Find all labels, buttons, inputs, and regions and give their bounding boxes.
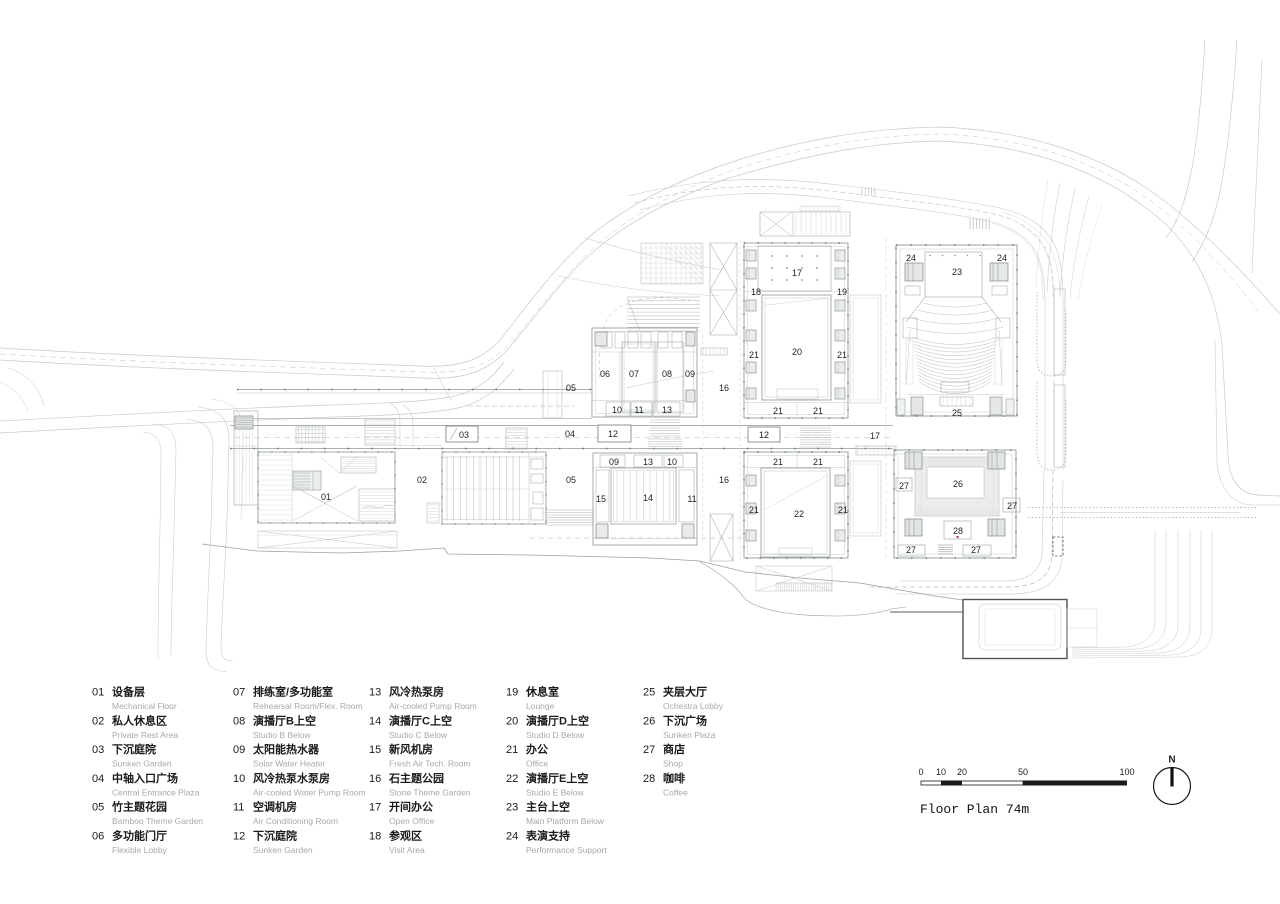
svg-text:20: 20	[506, 715, 518, 727]
svg-text:20: 20	[792, 347, 802, 357]
svg-text:Air Conditioning Room: Air Conditioning Room	[253, 816, 338, 826]
svg-text:Coffee: Coffee	[663, 787, 688, 797]
svg-text:28: 28	[953, 526, 963, 536]
svg-text:27: 27	[643, 744, 655, 756]
svg-text:演播厅D上空: 演播厅D上空	[526, 713, 589, 727]
svg-text:参观区: 参观区	[389, 829, 422, 843]
svg-text:10: 10	[612, 405, 622, 415]
svg-text:21: 21	[749, 505, 759, 515]
svg-text:06: 06	[92, 831, 104, 843]
svg-text:Ochestra Lobby: Ochestra Lobby	[663, 701, 724, 711]
svg-text:05: 05	[566, 475, 576, 485]
svg-text:26: 26	[953, 479, 963, 489]
svg-text:下沉庭院: 下沉庭院	[253, 829, 297, 843]
svg-text:Mechanical Floor: Mechanical Floor	[112, 701, 177, 711]
svg-text:Fresh Air Tech. Room: Fresh Air Tech. Room	[389, 759, 471, 769]
svg-text:21: 21	[506, 744, 518, 756]
svg-text:16: 16	[719, 383, 729, 393]
svg-text:Central Entrance Plaza: Central Entrance Plaza	[112, 787, 200, 797]
svg-text:04: 04	[92, 773, 104, 785]
svg-text:15: 15	[369, 744, 381, 756]
svg-text:10: 10	[667, 457, 677, 467]
svg-text:办公: 办公	[526, 742, 548, 756]
svg-text:25: 25	[643, 687, 655, 699]
svg-text:20: 20	[957, 767, 967, 777]
svg-text:设备层: 设备层	[112, 685, 145, 699]
svg-text:下沉庭院: 下沉庭院	[112, 742, 156, 756]
svg-text:21: 21	[749, 350, 759, 360]
svg-text:新风机房: 新风机房	[389, 742, 433, 756]
svg-text:27: 27	[906, 545, 916, 555]
svg-text:10: 10	[233, 773, 245, 785]
svg-text:Floor Plan 74m: Floor Plan 74m	[920, 802, 1029, 817]
svg-text:Rehearsal Room/Flex. Room: Rehearsal Room/Flex. Room	[253, 701, 363, 711]
svg-text:演播厅B上空: 演播厅B上空	[253, 713, 316, 727]
svg-text:01: 01	[92, 687, 104, 699]
svg-text:19: 19	[506, 687, 518, 699]
svg-text:Flexible Lobby: Flexible Lobby	[112, 845, 168, 855]
svg-text:开间办公: 开间办公	[389, 800, 433, 814]
svg-text:夹层大厅: 夹层大厅	[663, 685, 707, 699]
svg-text:多功能门厅: 多功能门厅	[112, 829, 167, 843]
svg-text:Private Rest Area: Private Rest Area	[112, 730, 178, 740]
svg-text:21: 21	[773, 406, 783, 416]
svg-text:28: 28	[643, 773, 655, 785]
svg-text:Visit Area: Visit Area	[389, 845, 425, 855]
svg-text:09: 09	[233, 744, 245, 756]
svg-text:13: 13	[643, 457, 653, 467]
svg-text:09: 09	[609, 457, 619, 467]
svg-text:Office: Office	[526, 759, 548, 769]
svg-text:25: 25	[952, 408, 962, 418]
svg-text:休息室: 休息室	[525, 685, 559, 699]
svg-text:石主题公园: 石主题公园	[388, 771, 444, 785]
svg-text:商店: 商店	[663, 742, 685, 756]
svg-text:14: 14	[643, 493, 653, 503]
svg-text:03: 03	[92, 744, 104, 756]
svg-text:01: 01	[321, 492, 331, 502]
svg-text:私人休息区: 私人休息区	[112, 713, 167, 727]
svg-text:0: 0	[918, 767, 923, 777]
svg-text:22: 22	[506, 773, 518, 785]
svg-text:咖啡: 咖啡	[663, 771, 685, 785]
svg-text:19: 19	[837, 287, 847, 297]
svg-text:03: 03	[459, 430, 469, 440]
svg-text:Sunken Garden: Sunken Garden	[112, 759, 172, 769]
svg-text:06: 06	[600, 369, 610, 379]
svg-text:02: 02	[92, 715, 104, 727]
svg-text:Lounge: Lounge	[526, 701, 555, 711]
svg-text:Air-cooled Water Pump Room: Air-cooled Water Pump Room	[253, 787, 366, 797]
svg-text:09: 09	[685, 369, 695, 379]
svg-text:11: 11	[634, 405, 643, 415]
svg-text:04: 04	[565, 429, 575, 439]
svg-text:05: 05	[92, 802, 104, 814]
svg-text:12: 12	[608, 429, 618, 439]
svg-text:下沉广场: 下沉广场	[663, 713, 707, 727]
svg-text:10: 10	[936, 767, 946, 777]
svg-text:空调机房: 空调机房	[253, 800, 297, 814]
svg-text:27: 27	[899, 481, 909, 491]
svg-text:Studio B Below: Studio B Below	[253, 730, 312, 740]
svg-text:N: N	[1168, 755, 1175, 766]
svg-text:Bamboo Theme Garden: Bamboo Theme Garden	[112, 816, 203, 826]
svg-text:12: 12	[759, 430, 769, 440]
svg-text:风冷热泵水泵房: 风冷热泵水泵房	[253, 771, 330, 785]
svg-text:21: 21	[813, 406, 823, 416]
svg-text:13: 13	[369, 687, 381, 699]
svg-text:演播厅C上空: 演播厅C上空	[389, 713, 452, 727]
svg-text:16: 16	[369, 773, 381, 785]
svg-text:竹主题花园: 竹主题花园	[111, 800, 167, 814]
svg-text:Open Office: Open Office	[389, 816, 434, 826]
svg-text:Sunken Plaza: Sunken Plaza	[663, 730, 716, 740]
svg-text:Sunken Garden: Sunken Garden	[253, 845, 313, 855]
svg-text:主台上空: 主台上空	[526, 800, 570, 814]
svg-text:18: 18	[751, 287, 761, 297]
svg-text:02: 02	[417, 475, 427, 485]
svg-text:Shop: Shop	[663, 759, 683, 769]
svg-text:24: 24	[997, 253, 1007, 263]
svg-text:15: 15	[596, 494, 606, 504]
svg-text:Air-cooled Pump Room: Air-cooled Pump Room	[389, 701, 477, 711]
svg-text:排练室/多功能室: 排练室/多功能室	[253, 685, 333, 699]
svg-text:21: 21	[813, 457, 823, 467]
svg-text:Main Platform Below: Main Platform Below	[526, 816, 605, 826]
svg-text:24: 24	[506, 831, 518, 843]
svg-text:22: 22	[794, 509, 804, 519]
svg-text:07: 07	[629, 369, 639, 379]
svg-text:12: 12	[233, 831, 245, 843]
svg-text:Solar Water Heater: Solar Water Heater	[253, 759, 326, 769]
svg-text:08: 08	[662, 369, 672, 379]
svg-text:风冷热泵房: 风冷热泵房	[389, 685, 444, 699]
svg-text:Studio E Below: Studio E Below	[526, 787, 585, 797]
svg-text:07: 07	[233, 687, 245, 699]
svg-text:11: 11	[687, 494, 696, 504]
svg-text:Studio D Below: Studio D Below	[526, 730, 585, 740]
svg-text:18: 18	[369, 831, 381, 843]
svg-text:17: 17	[870, 431, 880, 441]
svg-text:Studio C Below: Studio C Below	[389, 730, 448, 740]
svg-text:17: 17	[792, 268, 802, 278]
svg-text:23: 23	[952, 267, 962, 277]
svg-text:50: 50	[1018, 767, 1028, 777]
svg-text:08: 08	[233, 715, 245, 727]
svg-text:太阳能热水器: 太阳能热水器	[252, 742, 320, 756]
svg-text:05: 05	[566, 383, 576, 393]
svg-text:表演支持: 表演支持	[525, 829, 570, 843]
svg-text:13: 13	[662, 405, 672, 415]
svg-text:中轴入口广场: 中轴入口广场	[112, 771, 178, 785]
svg-text:21: 21	[773, 457, 783, 467]
svg-text:演播厅E上空: 演播厅E上空	[526, 771, 588, 785]
svg-text:14: 14	[369, 715, 381, 727]
svg-text:Performance Support: Performance Support	[526, 845, 607, 855]
svg-text:17: 17	[369, 802, 381, 814]
svg-text:Stone Theme Garden: Stone Theme Garden	[389, 787, 471, 797]
svg-text:23: 23	[506, 802, 518, 814]
svg-text:27: 27	[1007, 501, 1017, 511]
svg-text:16: 16	[719, 475, 729, 485]
svg-text:21: 21	[837, 350, 847, 360]
svg-text:21: 21	[838, 505, 848, 515]
svg-text:26: 26	[643, 715, 655, 727]
svg-text:27: 27	[971, 545, 981, 555]
svg-text:11: 11	[233, 802, 244, 814]
svg-text:24: 24	[906, 253, 916, 263]
svg-text:100: 100	[1119, 767, 1134, 777]
